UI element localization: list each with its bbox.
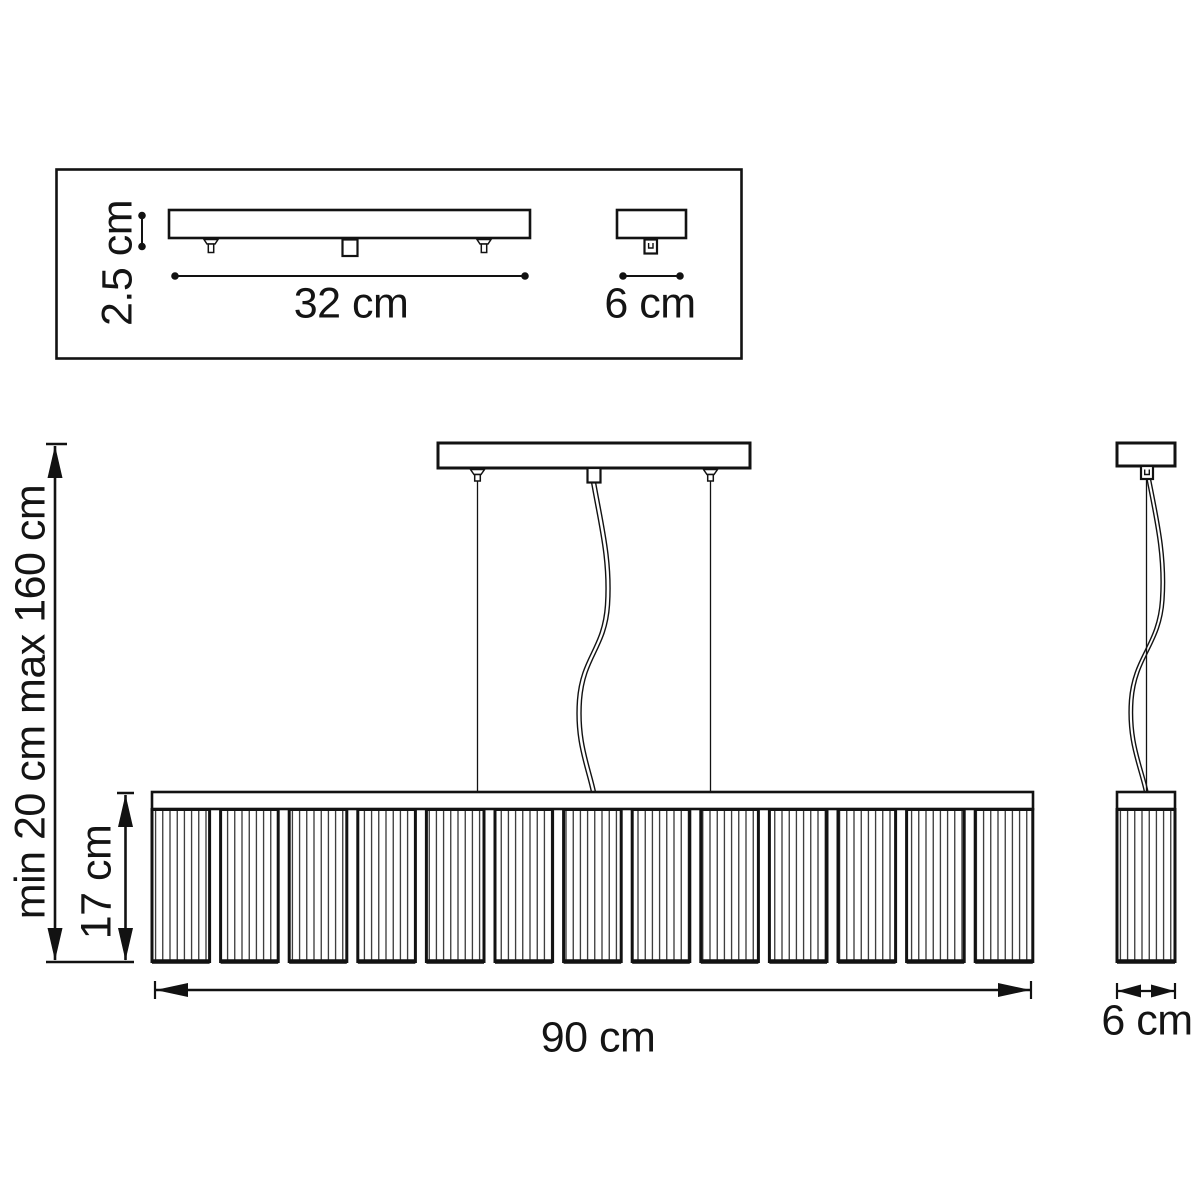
shade-width-label: 90 cm — [541, 1017, 656, 1060]
side-view — [1117, 443, 1175, 962]
suspension-range-label: min 20 cm max 160 cm — [10, 485, 53, 919]
mount-height-label: 2.5 cm — [97, 200, 140, 326]
mount-view-box — [57, 170, 742, 359]
mount-end-width-label: 6 cm — [604, 283, 695, 326]
mount-length-label: 32 cm — [294, 283, 409, 326]
side-cables — [1129, 479, 1165, 792]
front-view — [152, 443, 1033, 962]
mount-plate-end — [617, 210, 686, 254]
front-left-cable — [471, 470, 485, 793]
side-width-label: 6 cm — [1101, 1000, 1192, 1043]
front-shade-panels — [152, 810, 1033, 962]
side-shade — [1117, 792, 1175, 962]
dim-shade-width — [155, 981, 1031, 999]
mount-plate-long — [169, 210, 530, 256]
shade-height-label: 17 cm — [76, 825, 119, 940]
dimension-diagram: 2.5 cm 32 cm 6 cm min 20 cm max 160 cm 1… — [0, 0, 1200, 1200]
front-right-cable — [704, 470, 718, 793]
front-power-cord — [577, 468, 610, 792]
